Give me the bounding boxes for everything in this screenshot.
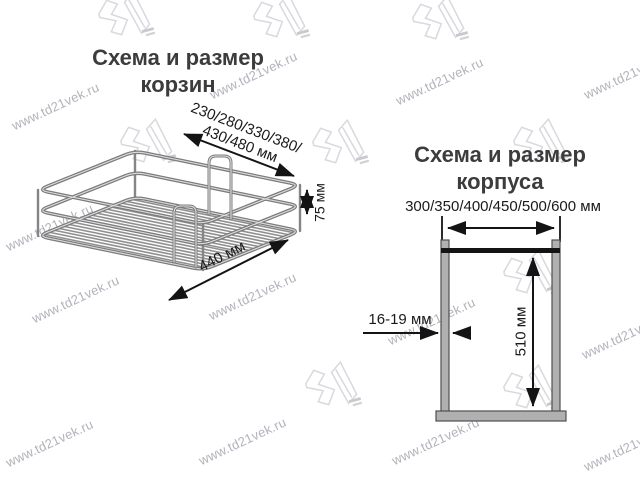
cabinet-title-line1: Схема и размер — [390, 141, 610, 168]
cabinet-dimension-arrows — [442, 216, 560, 242]
cabinet-title-line2: корпуса — [390, 168, 610, 195]
diagram-page: www.td21vek.ru www.td21vek.ru www.td21ve… — [0, 0, 640, 480]
cabinet-width-dimension-label: 300/350/400/450/500/600 мм — [383, 198, 623, 215]
cabinet-height-dimension-label: 510 мм — [513, 297, 530, 367]
cabinet-right-wall — [552, 240, 560, 412]
basket-title-line1: Схема и размер — [48, 44, 308, 71]
basket-height-dimension-label: 75 мм — [312, 173, 329, 233]
cabinet-wall-thickness-label: 16-19 мм — [350, 311, 450, 328]
basket-title: Схема и размер корзин — [48, 44, 308, 98]
cabinet-bottom-panel — [436, 411, 566, 421]
cabinet-top-rail — [441, 248, 560, 253]
cabinet-title: Схема и размер корпуса — [390, 141, 610, 195]
